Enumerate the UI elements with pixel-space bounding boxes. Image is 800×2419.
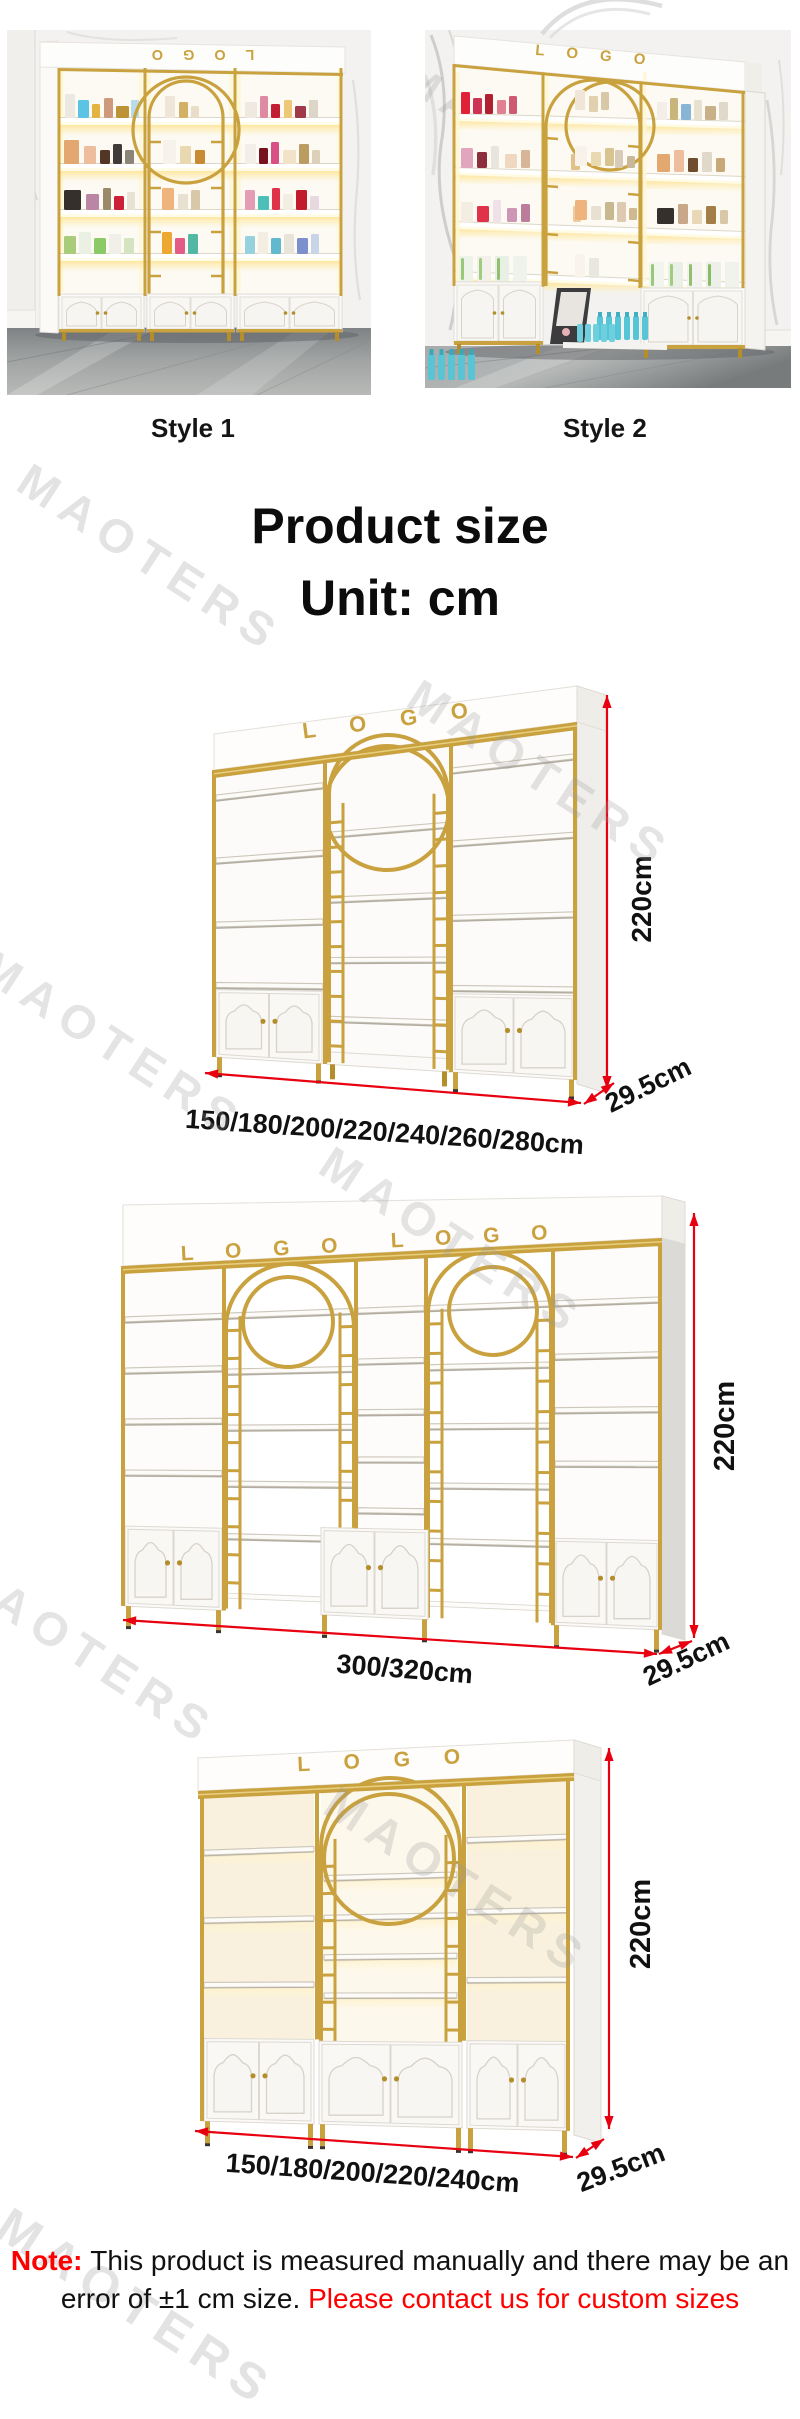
svg-text:220cm: 220cm bbox=[709, 1381, 741, 1471]
svg-text:300/320cm: 300/320cm bbox=[335, 1649, 474, 1690]
svg-text:L O G O: L O G O bbox=[144, 46, 255, 62]
svg-text:29.5cm: 29.5cm bbox=[638, 1626, 734, 1692]
svg-text:29.5cm: 29.5cm bbox=[600, 1051, 695, 1118]
svg-text:29.5cm: 29.5cm bbox=[573, 2137, 669, 2198]
svg-text:150/180/200/220/240cm: 150/180/200/220/240cm bbox=[225, 2148, 521, 2198]
svg-text:220cm: 220cm bbox=[625, 1879, 657, 1969]
